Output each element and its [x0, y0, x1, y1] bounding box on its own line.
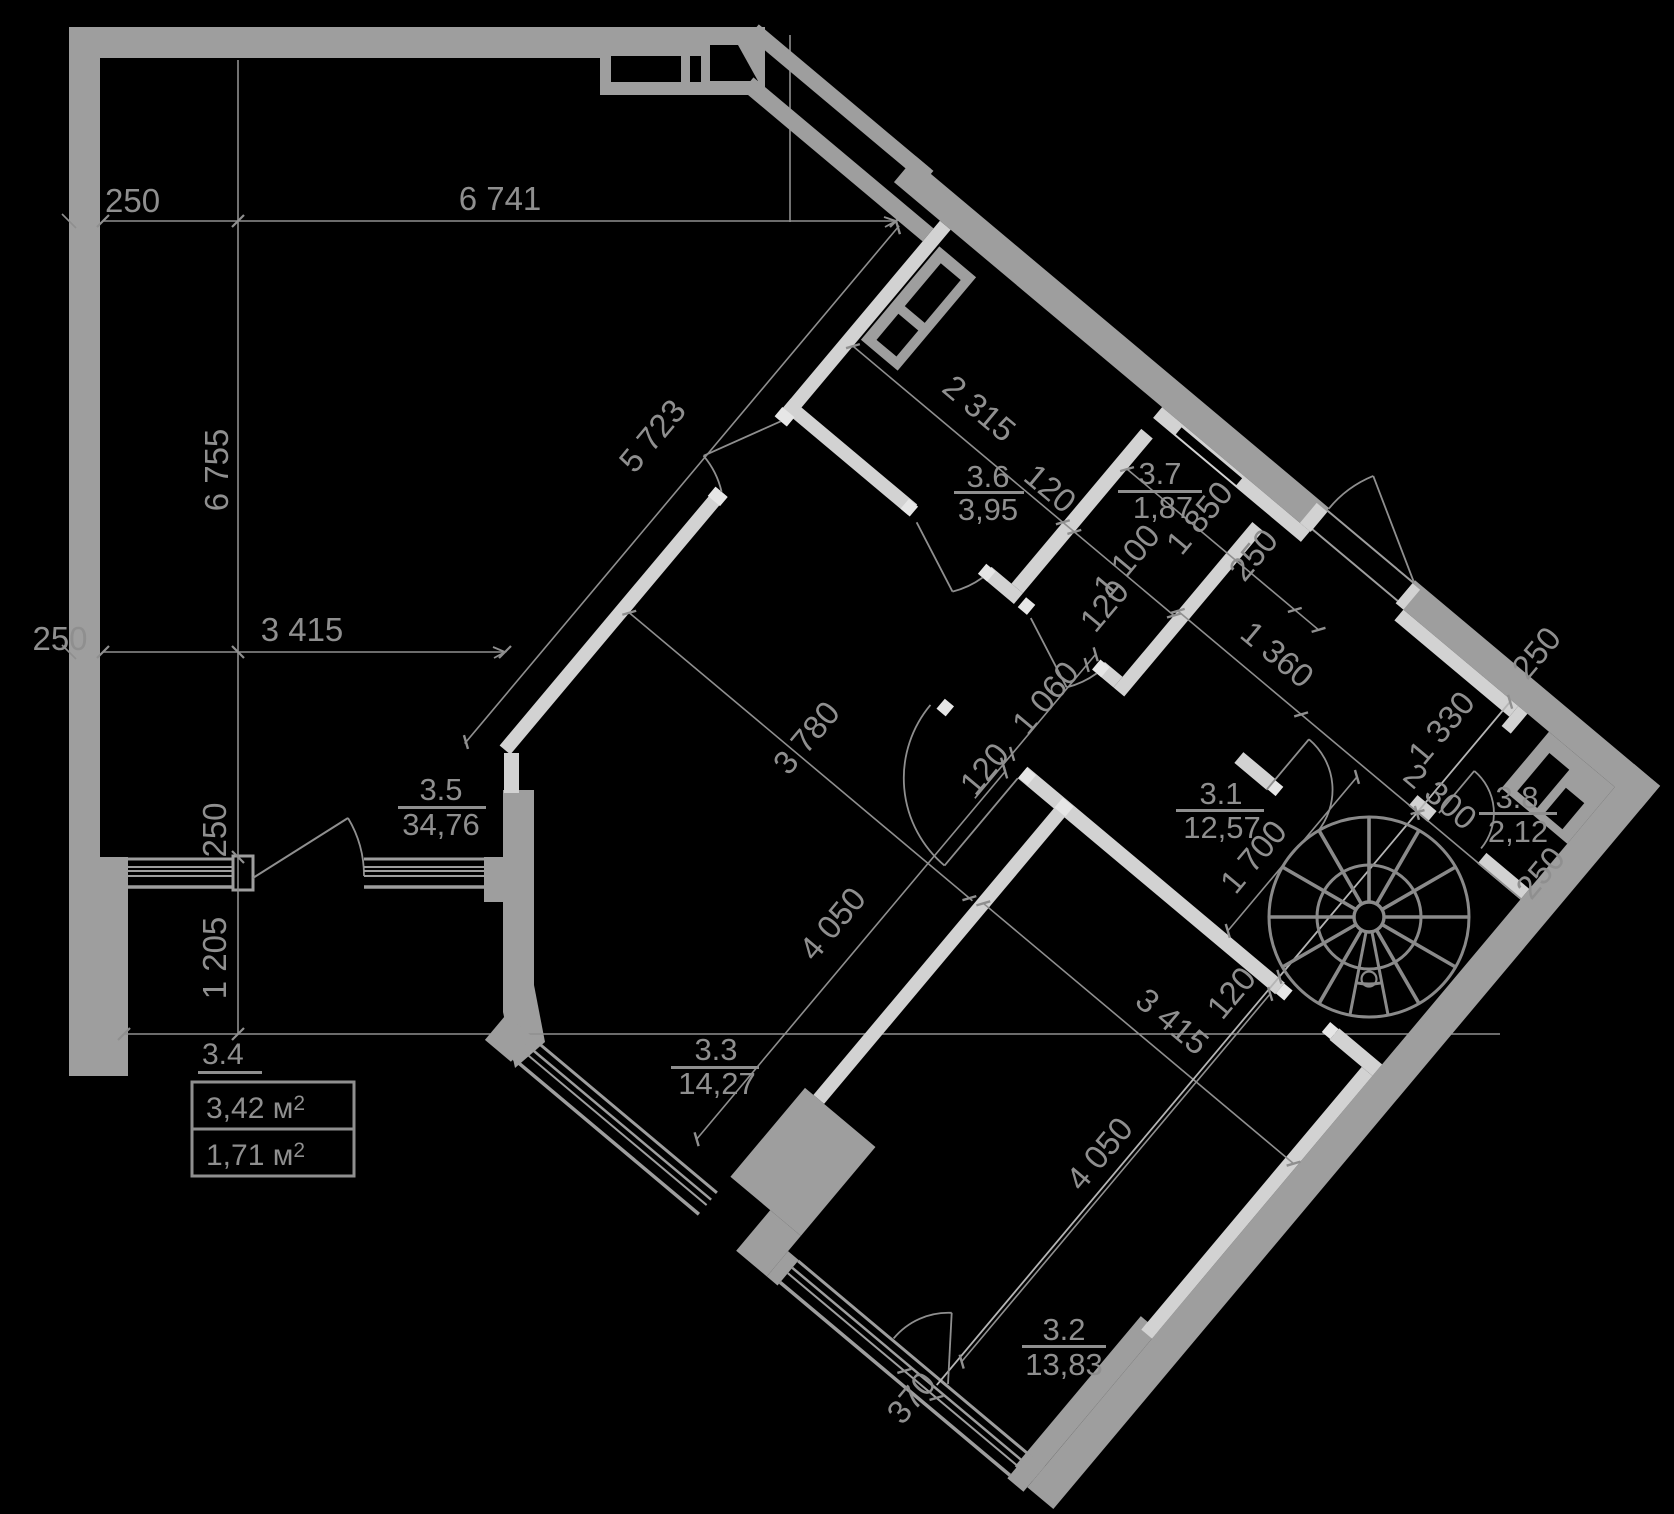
svg-text:13,83: 13,83 [1025, 1347, 1103, 1382]
svg-text:1 205: 1 205 [196, 917, 233, 1000]
svg-text:3.2: 3.2 [1042, 1312, 1085, 1347]
svg-text:6 741: 6 741 [459, 180, 542, 217]
svg-text:34,76: 34,76 [402, 807, 480, 842]
svg-text:1,71 м2: 1,71 м2 [206, 1139, 305, 1172]
svg-text:3.4: 3.4 [202, 1038, 244, 1071]
svg-text:3.7: 3.7 [1138, 456, 1181, 491]
svg-text:3.3: 3.3 [694, 1032, 737, 1067]
svg-text:14,27: 14,27 [678, 1066, 756, 1101]
svg-text:3.1: 3.1 [1199, 776, 1242, 811]
svg-text:250: 250 [105, 182, 160, 219]
svg-text:250: 250 [32, 620, 87, 657]
svg-text:3,42 м2: 3,42 м2 [206, 1092, 305, 1125]
svg-text:3.6: 3.6 [966, 459, 1009, 494]
svg-text:3 415: 3 415 [261, 611, 344, 648]
svg-text:6 755: 6 755 [198, 429, 235, 512]
svg-text:3.8: 3.8 [1495, 780, 1538, 815]
svg-text:3.5: 3.5 [419, 772, 462, 807]
svg-text:250: 250 [196, 802, 233, 857]
svg-text:3,95: 3,95 [958, 492, 1018, 527]
